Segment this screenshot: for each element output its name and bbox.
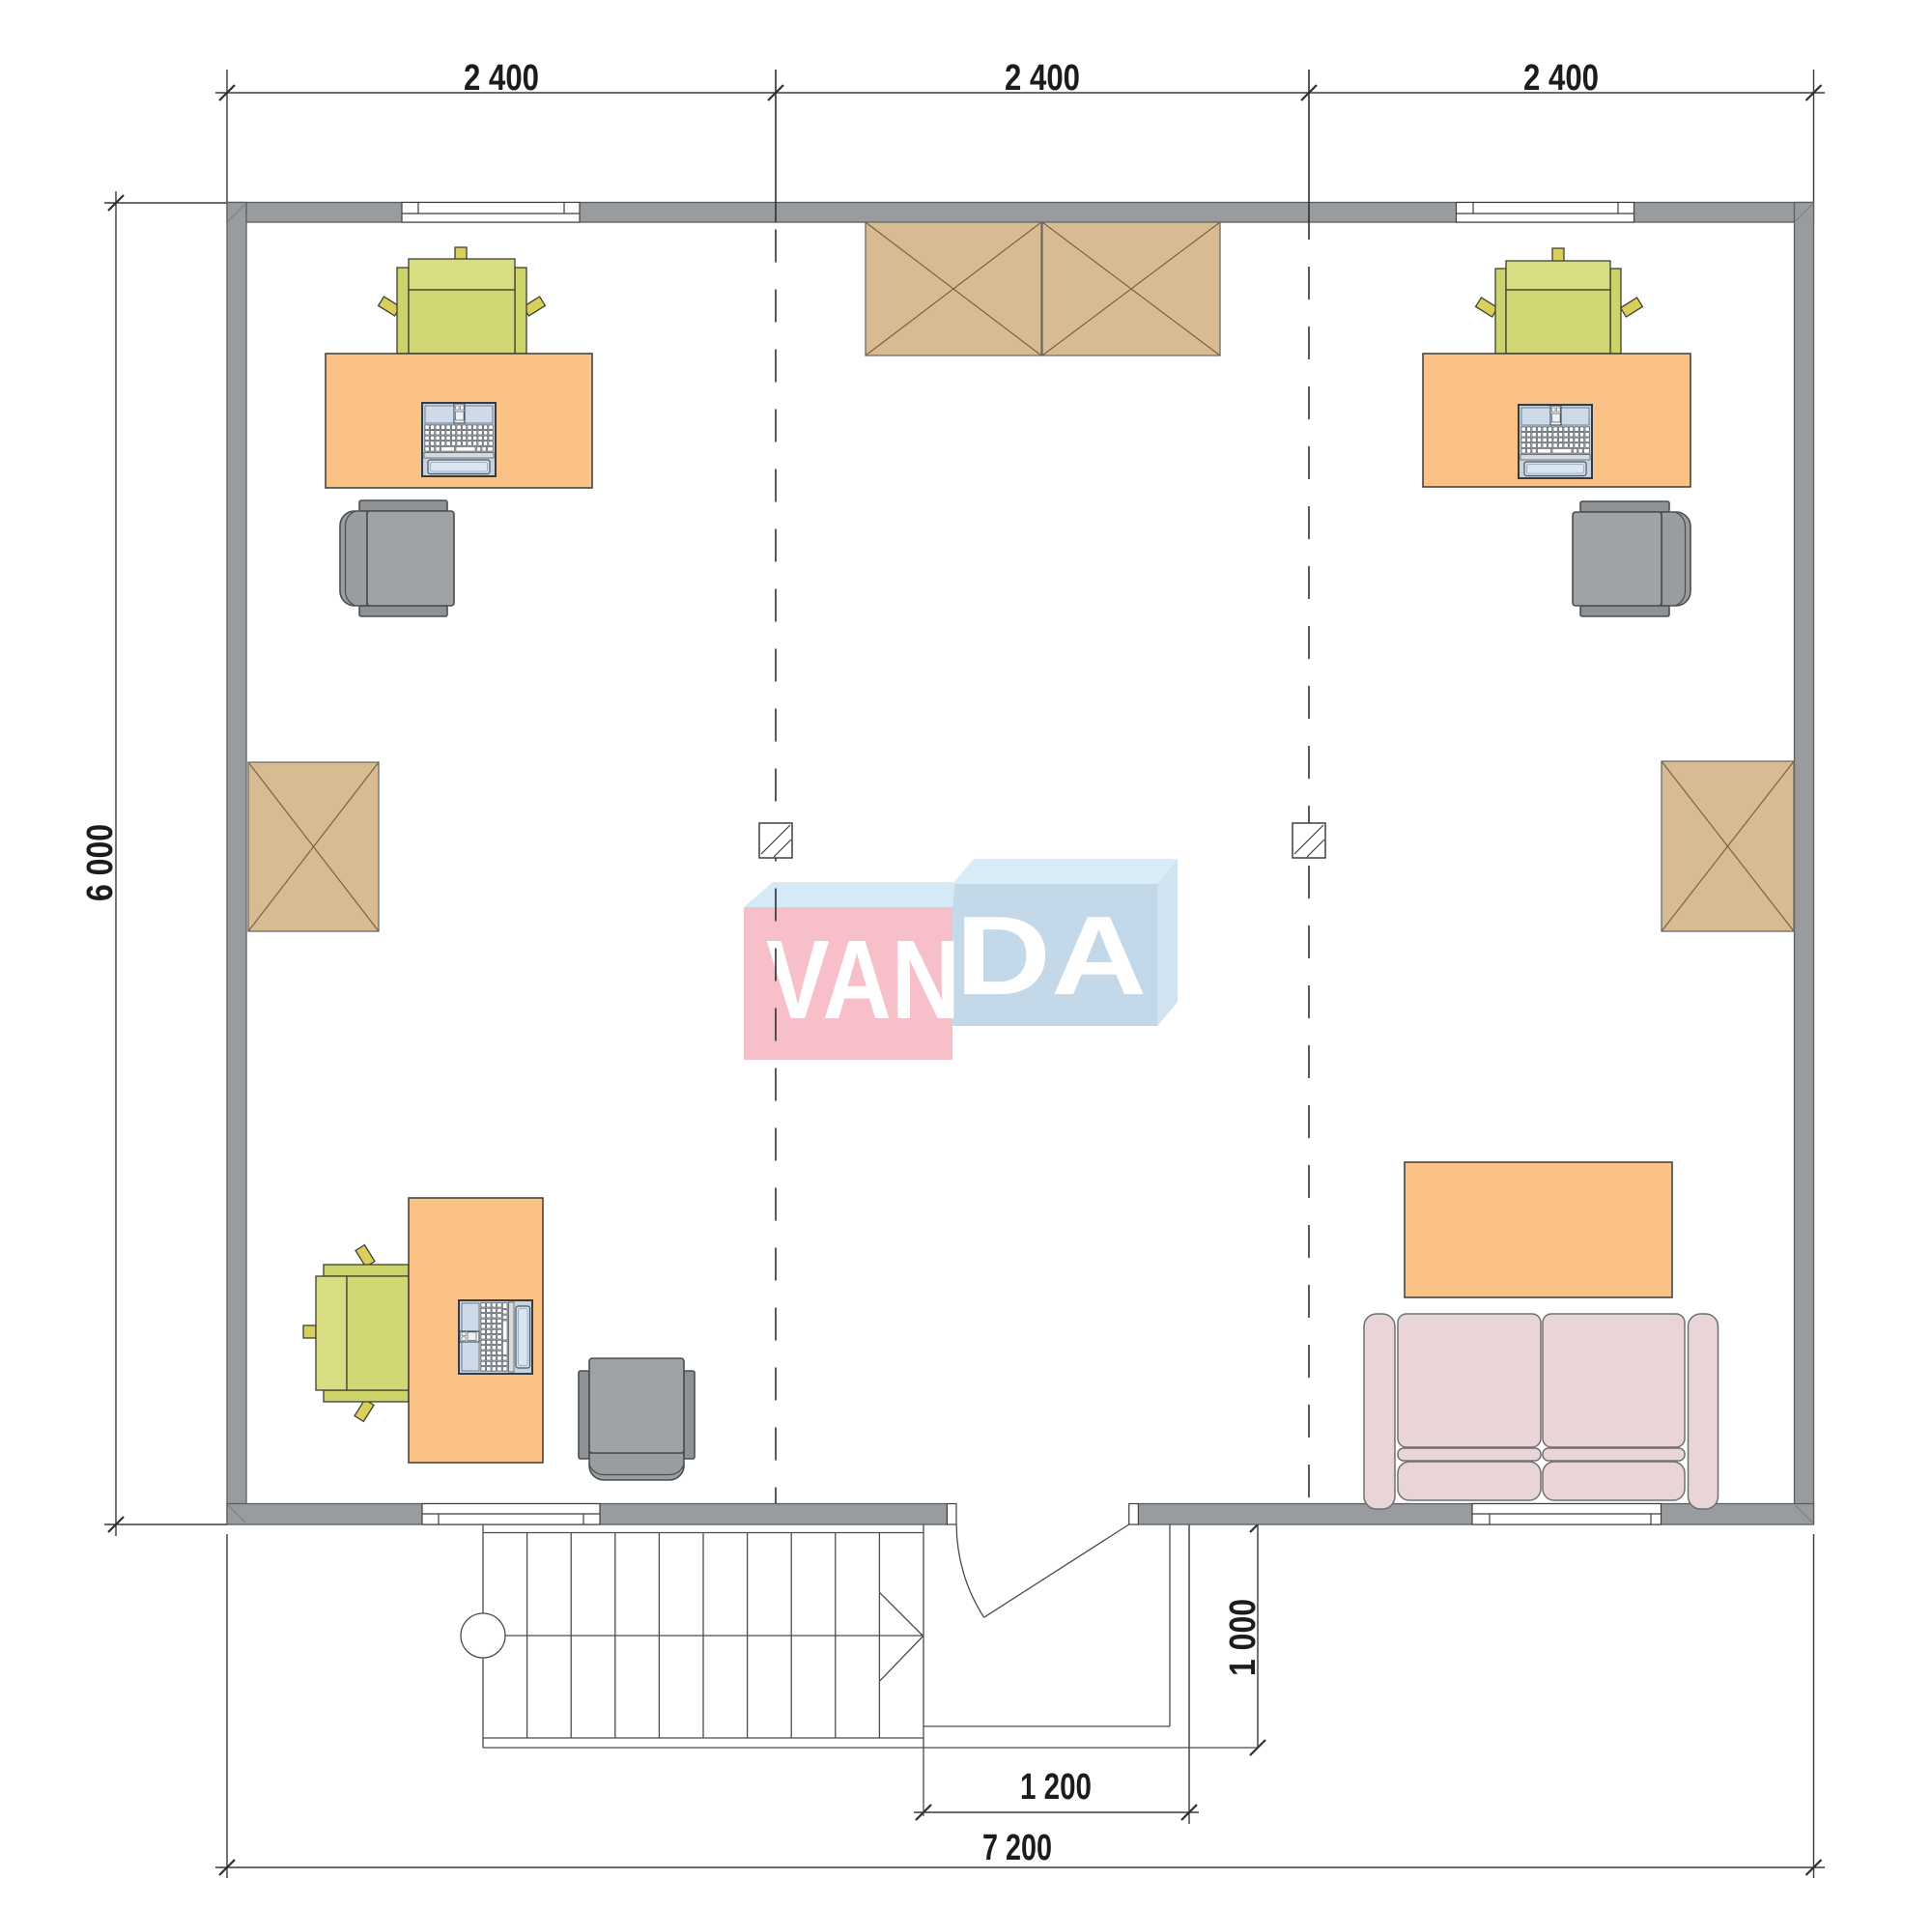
- svg-text:VAN: VAN: [766, 917, 960, 1042]
- svg-text:2 400: 2 400: [1523, 58, 1599, 99]
- svg-text:2 400: 2 400: [464, 58, 539, 99]
- svg-text:1 000: 1 000: [1223, 1599, 1264, 1676]
- svg-text:6 000: 6 000: [80, 824, 121, 901]
- svg-text:1 200: 1 200: [1020, 1767, 1092, 1808]
- svg-text:7 200: 7 200: [982, 1828, 1052, 1868]
- svg-text:2 400: 2 400: [1005, 58, 1080, 99]
- svg-text:DA: DA: [955, 893, 1147, 1018]
